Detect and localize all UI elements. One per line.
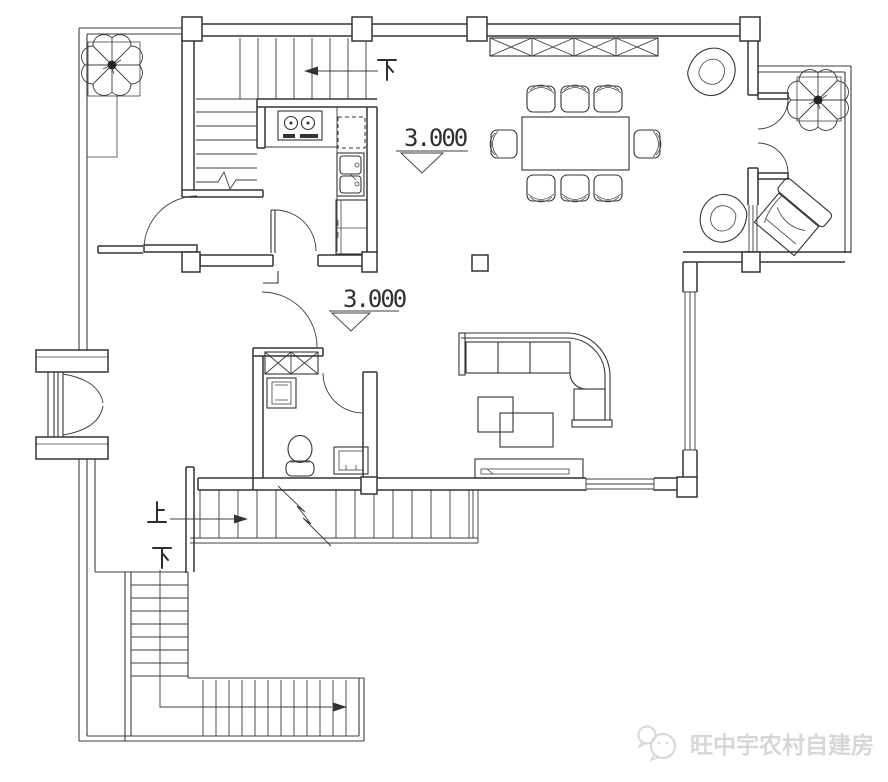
kitchen-fridge bbox=[336, 200, 367, 254]
dining-chairs bbox=[490, 85, 661, 202]
elevation-triangle bbox=[332, 313, 370, 331]
stairwell-left-wall bbox=[182, 36, 263, 197]
bathroom-door bbox=[323, 373, 363, 413]
stair-break-line bbox=[278, 486, 331, 546]
stair-break-line bbox=[196, 172, 257, 189]
stair-down-label-2 bbox=[153, 548, 171, 568]
column bbox=[742, 252, 760, 272]
living-south-east-walls bbox=[198, 252, 851, 492]
dining-room-cabinet bbox=[490, 38, 658, 56]
entry-wall bbox=[98, 246, 143, 253]
bathroom bbox=[253, 348, 377, 490]
hall-wall bbox=[200, 255, 362, 266]
entry-gate bbox=[36, 350, 108, 459]
elevation-value-1: 3.000 bbox=[404, 124, 467, 152]
coffee-table bbox=[500, 413, 553, 447]
dining-chair bbox=[634, 130, 661, 158]
potted-plant bbox=[684, 45, 739, 99]
balcony-window bbox=[749, 205, 757, 252]
dining-chair bbox=[594, 175, 622, 202]
kitchen-door bbox=[271, 210, 316, 253]
top-left-terrace bbox=[87, 42, 140, 157]
tv-cabinet bbox=[475, 459, 583, 478]
structural-columns bbox=[182, 17, 760, 497]
column bbox=[677, 477, 697, 497]
kitchen-appliance-dashed bbox=[338, 117, 365, 148]
coffee-table bbox=[478, 397, 513, 432]
elevation-value-2: 3.000 bbox=[343, 285, 406, 313]
dining-table bbox=[522, 117, 629, 170]
washing-machine bbox=[267, 378, 296, 408]
column bbox=[352, 17, 372, 41]
column bbox=[361, 477, 377, 494]
column bbox=[182, 17, 202, 41]
gate-door-leaves bbox=[48, 372, 103, 437]
column bbox=[472, 255, 488, 271]
main-staircase bbox=[186, 467, 478, 573]
exterior-staircase bbox=[79, 570, 364, 741]
stair-arrow-down bbox=[304, 67, 378, 76]
elevation-triangle bbox=[401, 153, 443, 173]
column bbox=[362, 252, 377, 272]
terrace-tree bbox=[82, 35, 143, 96]
column bbox=[467, 17, 487, 41]
elevation-marker-1: 3.000 bbox=[396, 124, 468, 173]
gate-pillar-top bbox=[36, 350, 108, 372]
hallway-door bbox=[262, 271, 317, 347]
dining-chair bbox=[561, 85, 589, 112]
watermark: 旺中宇农村自建房 bbox=[634, 720, 884, 766]
left-boundary-wall bbox=[79, 28, 186, 741]
gate-pillar-bottom bbox=[36, 437, 108, 459]
toilet bbox=[286, 436, 314, 477]
dining-chair bbox=[527, 85, 555, 112]
entry-door bbox=[144, 196, 197, 252]
dining-chair bbox=[527, 175, 555, 202]
stair-arrow-up bbox=[170, 515, 248, 524]
balcony-double-door bbox=[758, 93, 788, 179]
watermark-text: 旺中宇农村自建房 bbox=[690, 726, 874, 760]
potted-plant bbox=[693, 188, 754, 248]
floor-plan-drawing: 3.000 3.000 bbox=[0, 0, 888, 782]
elevation-marker-2: 3.000 bbox=[329, 285, 406, 331]
dining-chair bbox=[561, 175, 589, 202]
dining-chair bbox=[594, 85, 622, 112]
column bbox=[182, 252, 200, 272]
stair-up-label bbox=[148, 502, 166, 522]
floor-drain bbox=[334, 447, 368, 474]
lounge-chair bbox=[751, 177, 833, 258]
living-east-window bbox=[683, 292, 697, 450]
floor-plan-canvas: 3.000 3.000 bbox=[0, 0, 888, 782]
stair-down-label bbox=[378, 60, 396, 80]
wechat-icon bbox=[634, 722, 684, 764]
kitchen-sink bbox=[337, 153, 364, 196]
kitchen-stove bbox=[278, 111, 322, 140]
dining-chair bbox=[490, 130, 517, 158]
column bbox=[740, 17, 760, 41]
